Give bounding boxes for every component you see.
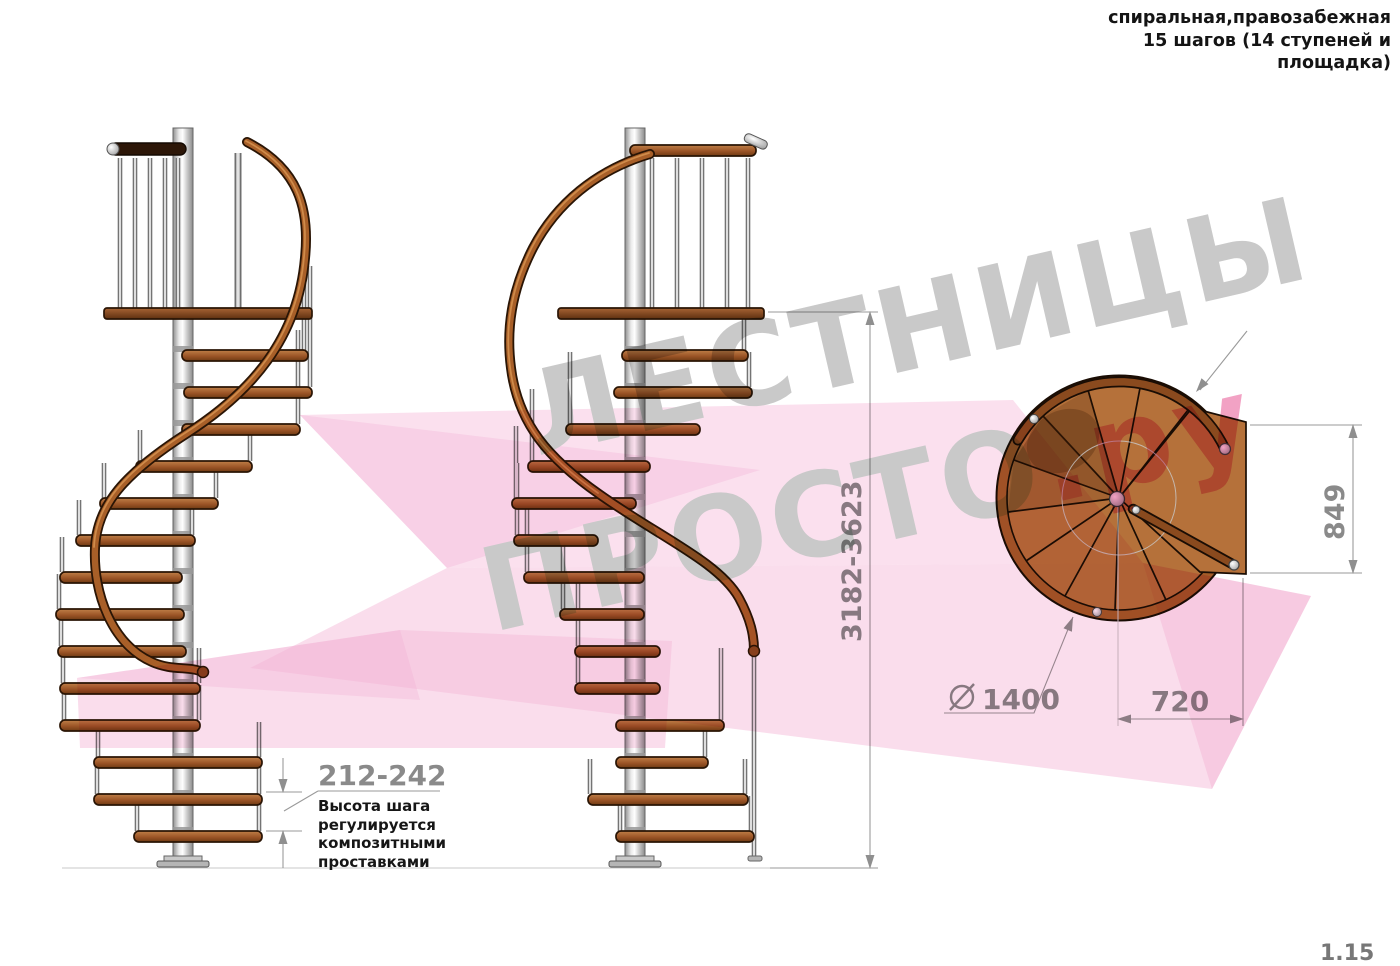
platform-width-value: 720 — [1151, 685, 1209, 718]
step — [614, 387, 752, 398]
note-line: регулируется — [318, 816, 468, 835]
platform — [558, 308, 764, 319]
step — [94, 757, 262, 768]
note-line: проставками — [318, 853, 468, 872]
handrail-end-cap — [749, 646, 760, 657]
pole-base-flange — [609, 861, 661, 867]
step — [134, 831, 262, 842]
middle-staircase-view — [508, 128, 768, 867]
handrail-end-cap — [1220, 444, 1231, 455]
step — [622, 350, 748, 361]
title-line: спиральная,правозабежная — [1108, 7, 1391, 30]
dimension-diameter: 1400 — [944, 617, 1073, 716]
step — [524, 572, 644, 583]
step — [60, 572, 182, 583]
baluster-cap — [1030, 415, 1039, 424]
step — [616, 720, 724, 731]
spiral-handrail — [94, 141, 306, 678]
handrail-end-cap — [107, 143, 119, 155]
left-staircase-view — [56, 128, 312, 867]
step — [575, 683, 660, 694]
dimension-total-height: 3182-3623 — [768, 311, 878, 869]
baluster-cap — [1093, 608, 1102, 617]
step — [514, 535, 598, 546]
platform-depth-value: 849 — [1320, 484, 1351, 540]
title-line: площадка) — [1108, 52, 1391, 75]
step — [560, 609, 644, 620]
step — [100, 498, 218, 509]
title-block: спиральная,правозабежная 15 шагов (14 ст… — [1108, 7, 1391, 75]
step — [60, 720, 200, 731]
step-height-value: 212-242 — [318, 759, 447, 792]
note-line: Высота шага — [318, 797, 468, 816]
diameter-value: 1400 — [982, 683, 1060, 716]
dimension-platform-depth: 849 — [1250, 424, 1362, 574]
pole-base-flange — [157, 861, 209, 867]
note-line: композитными — [318, 834, 468, 853]
handrail-joint — [1132, 506, 1140, 514]
plan-view — [997, 376, 1247, 727]
page-number: 1.15 — [1320, 941, 1374, 966]
drawing-sheet: 3182-3623 212-242 849 720 1400 — [0, 0, 1400, 955]
step — [56, 609, 184, 620]
diameter-symbol-icon — [950, 684, 974, 710]
step — [58, 646, 186, 657]
top-handrail — [110, 143, 186, 155]
step — [182, 350, 308, 361]
center-pole-hub — [1110, 492, 1125, 507]
step — [94, 794, 262, 805]
step — [60, 683, 200, 694]
step — [588, 794, 748, 805]
handrail-callout-arrow — [1196, 331, 1247, 392]
baluster-foot — [748, 856, 762, 861]
step — [616, 831, 754, 842]
total-height-value: 3182-3623 — [837, 481, 868, 643]
step-height-note: Высота шага регулируется композитными пр… — [318, 797, 468, 871]
handrail-end-cap — [1229, 560, 1239, 570]
center-pole — [625, 128, 645, 858]
step — [566, 424, 700, 435]
staircase-drawing: 3182-3623 212-242 849 720 1400 — [0, 0, 1400, 955]
platform — [104, 308, 312, 319]
step — [528, 461, 650, 472]
title-line: 15 шагов (14 ступеней и — [1108, 30, 1391, 53]
handrail-end-cap — [198, 667, 209, 678]
step — [616, 757, 708, 768]
step — [575, 646, 660, 657]
